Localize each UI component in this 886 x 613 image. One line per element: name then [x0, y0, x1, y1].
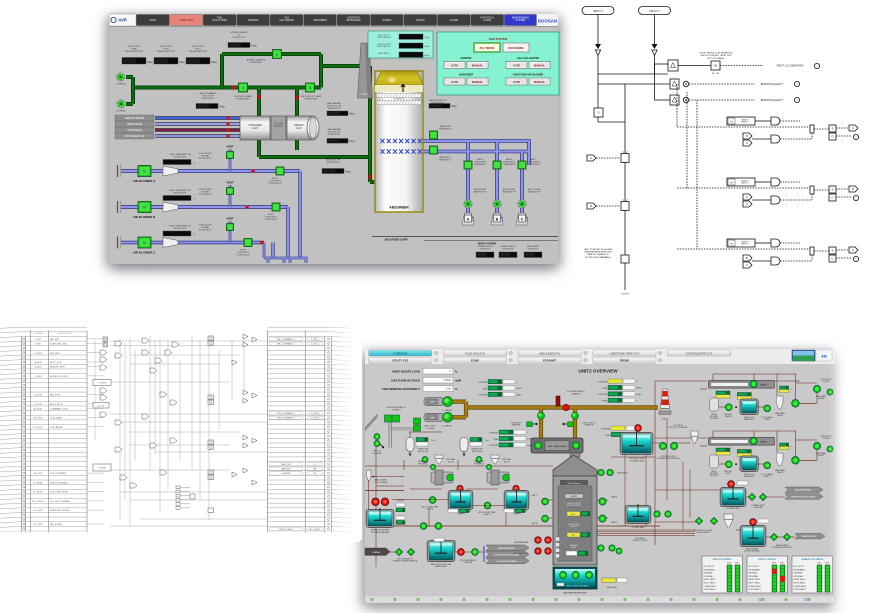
svg-text:ABSORBER: ABSORBER: [459, 74, 474, 77]
svg-text:mg/Nm: mg/Nm: [516, 395, 522, 397]
svg-text:C_PCM_1: C_PCM_1: [310, 413, 320, 415]
svg-text:STORAGE TANK A/B: STORAGE TANK A/B: [371, 531, 390, 534]
svg-text:LIMITS TO BE SET ON A LOOP: LIMITS TO BE SET ON A LOOP: [700, 54, 732, 57]
svg-text:BAD DATA QUALITY: BAD DATA QUALITY: [761, 99, 784, 102]
svg-text:RESET FAULT: RESET FAULT: [749, 578, 762, 581]
svg-text:*XXXXX/XX*: *XXXXX/XX*: [502, 248, 514, 250]
svg-text:VENT: VENT: [227, 145, 234, 149]
svg-text:PUMP B: PUMP B: [725, 473, 732, 475]
svg-text:BOOT STOP: BOOT STOP: [704, 566, 715, 568]
svg-text:ABSORBER AREA PUMP: ABSORBER AREA PUMP: [563, 592, 587, 595]
svg-text:*XXXXX/XX*: *XXXXX/XX*: [527, 248, 539, 250]
svg-text:FEEDER B: FEEDER B: [474, 463, 484, 465]
svg-text:OXIDATION AIR BLOWER: OXIDATION AIR BLOWER: [513, 74, 544, 77]
svg-text:SERVICE AIR: SERVICE AIR: [127, 123, 142, 126]
svg-text:Wet Limestone: Wet Limestone: [567, 482, 581, 485]
svg-text:DAMPER: DAMPER: [461, 57, 472, 60]
svg-text:*OPEN/SHUT*: *OPEN/SHUT*: [304, 99, 319, 101]
svg-text:BLOWDOWN TANK: BLOWDOWN TANK: [744, 550, 760, 553]
svg-text:PUMP A: PUMP A: [427, 508, 435, 511]
svg-text:RESET FAULT: RESET FAULT: [704, 578, 717, 581]
svg-text:P-WTR/A2: P-WTR/A2: [489, 431, 498, 434]
svg-text:M: M: [143, 241, 146, 245]
svg-text:REMOTE_RUN: REMOTE_RUN: [50, 367, 65, 369]
svg-text:*XXXXX/XXTP/XX*: *XXXXX/XXTP/XX*: [189, 51, 208, 53]
svg-text:PBL_RUN: PBL_RUN: [50, 353, 60, 355]
svg-text:CTAH: CTAH: [602, 387, 608, 390]
svg-text:TANK A: TANK A: [397, 499, 404, 502]
svg-text:Pavg: Pavg: [349, 112, 355, 115]
svg-text:OVER VIEW: OVER VIEW: [179, 19, 194, 22]
svg-text:AUTO: AUTO: [513, 64, 520, 68]
svg-text:IN/OUT FAULT: IN/OUT FAULT: [749, 582, 762, 585]
svg-text:S: S: [831, 188, 833, 192]
svg-text:THAN MAXIMUM EXPECTED: THAN MAXIMUM EXPECTED: [584, 251, 613, 254]
svg-text:T_RST: T_RST: [35, 339, 42, 341]
svg-text:PL_STOP: PL_STOP: [33, 427, 43, 429]
svg-text:C_PCM_2: C_PCM_2: [310, 418, 320, 420]
svg-text:UNIT2 OVERVIEW: UNIT2 OVERVIEW: [578, 369, 618, 374]
svg-text:*START/STOP*: *START/STOP*: [473, 190, 487, 193]
svg-text:C: C: [746, 202, 748, 206]
svg-text:PAL_COMMAND_2: PAL_COMMAND_2: [277, 343, 295, 346]
svg-text:ABSORBER AREA: ABSORBER AREA: [498, 547, 515, 550]
svg-text:SPRAY PUMPS: SPRAY PUMPS: [478, 241, 497, 245]
svg-text:XFER_PDOWNED: XFER_PDOWNED: [50, 482, 68, 484]
svg-text:XXX_PDOWNED: XXX_PDOWNED: [50, 473, 67, 475]
svg-text:CPXH: CPXH: [602, 401, 608, 403]
svg-text:S: S: [831, 127, 833, 131]
svg-text:*XXTXXX/XXT*: *XXTXXX/XXT*: [173, 192, 187, 194]
svg-text:PUMP B: PUMP B: [484, 514, 492, 516]
svg-text:PRD_COMMAND_1: PRD_COMMAND_1: [277, 412, 296, 415]
svg-text:Pavg: Pavg: [451, 105, 457, 108]
svg-text:ABS STAGE PUMP A/B/C: ABS STAGE PUMP A/B/C: [567, 585, 590, 588]
svg-text:INPUT 3: INPUT 3: [741, 244, 748, 246]
svg-text:PL_XFER: PL_XFER: [33, 482, 43, 484]
svg-text:STORAGE TANK: STORAGE TANK: [630, 459, 645, 462]
svg-text:M: M: [143, 205, 146, 209]
svg-text:S: S: [831, 249, 833, 253]
svg-text:*XXXXX/TPC*: *XXXXX/TPC*: [232, 37, 246, 39]
svg-text:GAS PASSED: GAS PASSED: [327, 102, 341, 105]
svg-text:GAS HEATER: GAS HEATER: [279, 19, 294, 22]
svg-text:PUMP A: PUMP A: [764, 418, 771, 421]
svg-text:GAS GAS HEATER: GAS GAS HEATER: [517, 57, 540, 60]
svg-text:Pavg: Pavg: [251, 44, 257, 47]
svg-text:PAL_ASSIST: PAL_ASSIST: [50, 523, 63, 526]
svg-text:INTERNAL: INTERNAL: [794, 572, 803, 575]
svg-text:BY LOOP BASIS: BY LOOP BASIS: [708, 57, 725, 60]
svg-text:STACK: STACK: [662, 418, 669, 421]
svg-text:Pavg: Pavg: [219, 105, 225, 108]
svg-text:RATE OF CHANGE OF: RATE OF CHANGE OF: [587, 253, 610, 256]
svg-text:PRD_COMMAND_2: PRD_COMMAND_2: [277, 417, 296, 420]
svg-text:*XXTXXX/XXT*: *XXTXXX/XXT*: [173, 156, 187, 158]
svg-text:UNIT2: UNIT2: [571, 496, 576, 498]
svg-text:mg/Nm: mg/Nm: [527, 445, 533, 447]
svg-text:WASH TANK: WASH TANK: [744, 475, 755, 478]
svg-text:GAF: GAF: [430, 401, 435, 404]
svg-text:AUTO: AUTO: [451, 64, 458, 68]
svg-text:AIR BLOWER C: AIR BLOWER C: [133, 251, 156, 255]
svg-text:*XXXXX/XXTP/XX*: *XXXXX/XXTP/XX*: [125, 51, 144, 53]
svg-text:FEED PUMP A/B: FEED PUMP A/B: [697, 531, 711, 534]
svg-text:*XXXXX/TPC*: *XXXXX/TPC*: [326, 162, 340, 164]
svg-text:IN/OUT FAULT: IN/OUT FAULT: [704, 582, 717, 585]
svg-text:*START/STOP*: *START/STOP*: [502, 190, 516, 193]
svg-text:PAL_RST: PAL_RST: [50, 338, 60, 341]
svg-text:C-GTAH IN: C-GTAH IN: [442, 425, 453, 428]
svg-text:A: A: [746, 195, 748, 199]
svg-text:UNIT2 BOILER LOAD: UNIT2 BOILER LOAD: [392, 369, 420, 373]
svg-text:C: C: [852, 248, 854, 252]
svg-text:GGH: GGH: [296, 127, 302, 130]
svg-text:DESCRIPTION: DESCRIPTION: [58, 333, 73, 335]
svg-text:FGD REMOVAL EFFICIENCY: FGD REMOVAL EFFICIENCY: [382, 387, 420, 391]
svg-text:BROADBAND: BROADBAND: [704, 568, 716, 571]
svg-text:TANK B: TANK B: [397, 523, 404, 526]
svg-text:BAD DATA QUALITY: BAD DATA QUALITY: [761, 83, 784, 86]
svg-text:FORCE FAULT: FORCE FAULT: [794, 588, 807, 591]
svg-text:UTILITY SYS: UTILITY SYS: [392, 359, 408, 363]
svg-text:mmWG: mmWG: [636, 388, 642, 390]
svg-text:INPUT 1: INPUT 1: [741, 122, 748, 124]
svg-text:BYPASS DAMPS: BYPASS DAMPS: [231, 31, 249, 34]
svg-text:DAMPER: DAMPER: [248, 19, 259, 22]
svg-text:GGH STEAM: GGH STEAM: [127, 129, 141, 132]
svg-text:GLONED TANK: GLONED TANK: [632, 526, 646, 529]
svg-text:R_RUN: R_RUN: [34, 353, 42, 355]
svg-text:INTERLOCK_RUN: INTERLOCK_RUN: [50, 376, 68, 378]
svg-text:2: 2: [276, 52, 278, 56]
svg-text:* Dmi: * Dmi: [431, 440, 436, 442]
svg-text:A: A: [852, 126, 854, 130]
svg-text:m3/g: m3/g: [425, 37, 429, 39]
svg-text:M: M: [143, 169, 146, 173]
svg-text:EXTERNAL: EXTERNAL: [794, 575, 804, 578]
svg-text:LAST TO BE SET PE HIGHER: LAST TO BE SET PE HIGHER: [584, 248, 613, 251]
svg-text:PLC MODE: PLC MODE: [480, 46, 495, 50]
svg-text:AUTO_RUN: AUTO_RUN: [50, 361, 62, 364]
svg-text:*XXXXX/TPC*: *XXXXX/TPC*: [327, 108, 341, 110]
svg-text:AUTO_STOP: AUTO_STOP: [50, 403, 63, 406]
svg-text:OXIDATION: OXIDATION: [347, 17, 360, 20]
svg-text:PUMPS: PUMPS: [382, 19, 391, 22]
svg-text:ABSORBER AREA: ABSORBER AREA: [795, 489, 812, 492]
svg-text:DAY SILO A: DAY SILO A: [418, 450, 429, 453]
svg-text:AIR BLOWER B: AIR BLOWER B: [133, 215, 156, 219]
svg-text:GYPSUM DWTR SYS: GYPSUM DWTR SYS: [686, 351, 713, 355]
svg-text:I.D FAN A: I.D FAN A: [116, 83, 126, 86]
svg-text:C_PAL_1: C_PAL_1: [311, 338, 320, 341]
svg-text:MANUAL: MANUAL: [534, 64, 546, 68]
svg-text:~ Fig: FGD Plant Graphic Displ: ~ Fig: FGD Plant Graphic Display: [112, 267, 151, 271]
svg-text:PUMP A: PUMP A: [725, 415, 732, 418]
svg-text:FGD INLET DAMP: FGD INLET DAMP: [234, 95, 253, 98]
svg-text:COM_ASSIST: COM_ASSIST: [50, 426, 64, 429]
svg-text:RECEIVER: RECEIVER: [710, 418, 719, 420]
svg-text:S_STOP: S_STOP: [34, 404, 43, 406]
svg-text:EXTERNAL: EXTERNAL: [704, 575, 714, 578]
svg-text:C-GTAH IN: C-GTAH IN: [442, 409, 453, 412]
svg-text:BLOWDOWN PUMP A/B: BLOWDOWN PUMP A/B: [773, 546, 793, 549]
svg-text:MANUAL: MANUAL: [534, 80, 546, 84]
svg-text:STACK: STACK: [362, 93, 369, 96]
svg-text:4: 4: [309, 86, 311, 90]
svg-text:PERFORM_PDOWN: PERFORM_PDOWN: [50, 510, 70, 512]
svg-text:PLL2_PROT: PLL2_PROT: [32, 501, 45, 503]
svg-text:C: C: [746, 263, 748, 267]
svg-text:OAF B: OAF B: [611, 521, 618, 524]
svg-text:*XXTXXXXXX*: *XXTXXXXXX*: [198, 158, 212, 160]
svg-text:FGD OUTLET DAMP: FGD OUTLET DAMP: [301, 95, 322, 98]
svg-text:COMMON CPU STATUS: COMMON CPU STATUS: [801, 558, 824, 561]
svg-text:OUTPUT: OUTPUT: [621, 294, 630, 296]
svg-text:*OPEN/SHUT*: *OPEN/SHUT*: [236, 99, 251, 101]
svg-text:P-WTR/A1: P-WTR/A1: [598, 393, 607, 396]
svg-text:FILTRATE TANK: FILTRATE TANK: [726, 507, 740, 510]
svg-text:ALARM: ALARM: [450, 19, 459, 22]
svg-text:*START/STOP*: *START/STOP*: [527, 190, 541, 193]
svg-text:P-WTR/A2: P-WTR/A2: [601, 427, 610, 430]
svg-text:AUTO: AUTO: [451, 80, 458, 84]
svg-text:C_RUN: C_RUN: [34, 376, 42, 378]
svg-text:B: B: [852, 187, 854, 191]
svg-text:WASHING WATER PUMP A/B: WASHING WATER PUMP A/B: [393, 560, 418, 563]
svg-text:C_PAL_2: C_PAL_2: [311, 343, 320, 346]
svg-text:*XXXXX/TPC*: *XXXXX/TPC*: [327, 134, 341, 136]
svg-text:LE SHAFT: LE SHAFT: [391, 408, 401, 411]
svg-text:FEEDER A: FEEDER A: [418, 462, 428, 465]
svg-text:POWER FAULT: POWER FAULT: [704, 585, 718, 588]
svg-text:INPUT 2: INPUT 2: [650, 9, 660, 13]
svg-text:MANUAL: MANUAL: [472, 64, 484, 68]
svg-text:PUMP B: PUMP B: [764, 476, 771, 478]
svg-text:*OPEN/SHUT*: *OPEN/SHUT*: [473, 164, 486, 166]
svg-text:INTERNAL: INTERNAL: [749, 572, 758, 575]
svg-text:TREND: TREND: [620, 359, 629, 363]
svg-text:m3M: m3M: [455, 378, 461, 382]
svg-text:AB: AB: [821, 354, 827, 359]
svg-text:START_PAL_SEQ: START_PAL_SEQ: [50, 343, 67, 346]
svg-text:Pavg: Pavg: [211, 61, 217, 64]
svg-text:DENSITY: DENSITY: [570, 526, 578, 528]
svg-text:DOOSAN: DOOSAN: [538, 19, 557, 24]
svg-text:*OPEN/SHUT*: *OPEN/SHUT*: [438, 159, 451, 161]
svg-text:ABS pH A/B: ABS pH A/B: [607, 586, 617, 589]
svg-text:OIL/GAS: OIL/GAS: [274, 122, 283, 125]
svg-text:CTAH: CTAH: [605, 434, 611, 437]
svg-text:PS_RUN: PS_RUN: [34, 473, 43, 475]
svg-text:%: %: [194, 199, 196, 201]
svg-text:0.00: 0.00: [446, 387, 452, 391]
svg-text:GAS A INLET: GAS A INLET: [617, 472, 629, 475]
svg-text:DOWNED: DOWNED: [281, 473, 291, 475]
svg-text:FGD WWT: FGD WWT: [543, 359, 556, 363]
svg-text:OAF B: OAF B: [531, 522, 537, 525]
svg-text:Pavg: Pavg: [349, 140, 355, 143]
svg-text:mg/Nm: mg/Nm: [636, 394, 642, 396]
svg-text:A: A: [590, 156, 592, 160]
svg-text:VBF B: VBF B: [760, 442, 767, 444]
svg-text:INPUT 1 & 2 DEVIATION: INPUT 1 & 2 DEVIATION: [777, 65, 804, 68]
svg-text:BOOT STOP: BOOT STOP: [794, 566, 805, 568]
svg-text:FLUE GAS VOL: FLUE GAS VOL: [377, 45, 392, 48]
svg-text:DAY SILO B: DAY SILO B: [472, 450, 483, 453]
svg-text:ALARM: ALARM: [483, 19, 491, 22]
svg-text:COMMAND_STOP: COMMAND_STOP: [50, 407, 68, 410]
svg-text:PL_CMD: PL_CMD: [34, 524, 43, 526]
svg-text:FGD SYSTEM: FGD SYSTEM: [489, 37, 508, 41]
svg-text:OVERVIEW: OVERVIEW: [393, 351, 408, 355]
svg-text:HYDROCYCLONE A/B: HYDROCYCLONE A/B: [669, 426, 688, 429]
svg-text:Pavg: Pavg: [345, 170, 351, 173]
svg-text:P-WTR/A2: P-WTR/A2: [598, 380, 607, 383]
svg-text:PR A: PR A: [132, 48, 138, 51]
svg-text:MILL A: MILL A: [448, 460, 455, 463]
svg-text:VENT: VENT: [227, 217, 234, 221]
svg-text:Pavg: Pavg: [179, 61, 185, 64]
svg-text:*OPEN/SHUT*: *OPEN/SHUT*: [249, 62, 264, 64]
svg-text:27533: 27533: [444, 378, 452, 382]
svg-text:PV (PROCESS VARIABLE): PV (PROCESS VARIABLE): [585, 256, 611, 259]
svg-text:GGH: GGH: [252, 127, 258, 130]
svg-text:ABS WATER C/D: ABS WATER C/D: [514, 552, 529, 555]
svg-text:WASH TANK: WASH TANK: [744, 418, 755, 421]
svg-text:LIMESTONE SLURRY AREA: LIMESTONE SLURRY AREA: [791, 496, 816, 499]
svg-text:AUTO: AUTO: [513, 80, 520, 84]
svg-text:BOOT STOP: BOOT STOP: [749, 566, 760, 568]
svg-text:*XXTXXXXXX*: *XXTXXXXXX*: [268, 183, 282, 185]
svg-text:mmWG: mmWG: [516, 388, 522, 390]
svg-text:VBF A: VBF A: [760, 384, 767, 387]
svg-text:B: B: [590, 204, 592, 208]
svg-text:HL: HL: [714, 64, 718, 68]
svg-text:DAMPER: DAMPER: [512, 424, 521, 427]
svg-text:EFFICIENCY: EFFICIENCY: [378, 53, 391, 55]
svg-text:EXTERNAL: EXTERNAL: [749, 575, 759, 578]
svg-text:INPUT 2: INPUT 2: [741, 183, 748, 185]
svg-text:*OPEN/SHUT*: *OPEN/SHUT*: [438, 128, 451, 130]
svg-text:OAF A: OAF A: [611, 496, 618, 499]
svg-text:*XXTXXX/XXT*: *XXTXXX/XXT*: [173, 228, 187, 230]
svg-text:GAS PASSED: GAS PASSED: [327, 128, 341, 131]
svg-text:*XXXXX/TPC*: *XXXXX/TPC*: [201, 98, 215, 100]
svg-text:WASTE WATER: WASTE WATER: [802, 535, 816, 538]
svg-text:POWER FAULT: POWER FAULT: [749, 585, 763, 588]
svg-text:PAL_COMMAND_1: PAL_COMMAND_1: [277, 338, 295, 341]
svg-text:SYSTEM: SYSTEM: [34, 333, 43, 335]
svg-text:* Dmi: * Dmi: [485, 440, 490, 442]
svg-text:m3/g: m3/g: [425, 46, 429, 48]
svg-text:UNIT2 I/O STATUS: UNIT2 I/O STATUS: [758, 558, 776, 561]
svg-text:DAMPER: DAMPER: [572, 392, 581, 395]
svg-text:BYPASS DAMPER: BYPASS DAMPER: [247, 59, 266, 62]
svg-text:m3/g: m3/g: [425, 55, 429, 57]
svg-text:AVR: AVR: [118, 18, 127, 23]
svg-text:GAS UPGRADED: GAS UPGRADED: [324, 156, 342, 159]
svg-text:mmWG: mmWG: [527, 439, 533, 441]
svg-text:ABSORBER: ABSORBER: [313, 19, 327, 22]
svg-text:PUMP A/B: PUMP A/B: [754, 506, 763, 509]
svg-text:*XXXXX/XXTP/XX*: *XXXXX/XXTP/XX*: [157, 51, 176, 53]
svg-text:ECWS: ECWS: [471, 359, 479, 363]
svg-text:*OPEN/SHUT*: *OPEN/SHUT*: [502, 164, 515, 166]
svg-text:S_RUN: S_RUN: [34, 367, 42, 369]
svg-text:PAL_STOP: PAL_STOP: [50, 393, 61, 396]
svg-text:PUMP A: PUMP A: [818, 397, 825, 400]
svg-text:*XXTXXXXXX*: *XXTXXXXXX*: [264, 219, 278, 221]
svg-text:POWER FAULT: POWER FAULT: [794, 585, 808, 588]
svg-text:SPRAYERS: SPRAYERS: [394, 98, 405, 101]
svg-text:WATER TANK: WATER TANK: [435, 565, 447, 568]
svg-text:CYCLONE A/B: CYCLONE A/B: [375, 481, 388, 484]
svg-text:P-WTR/A2: P-WTR/A2: [478, 381, 487, 384]
svg-text:P-WTR/A1: P-WTR/A1: [489, 444, 498, 447]
svg-text:CTAH: CTAH: [482, 387, 488, 390]
svg-text:HL : XX: HL : XX: [712, 73, 720, 75]
svg-text:XXXX_PDF_RDWT: XXXX_PDF_RDWT: [50, 492, 69, 494]
svg-text:CTAH: CTAH: [493, 438, 499, 441]
svg-text:S_PB2: S_PB2: [35, 344, 42, 346]
svg-text:PUMP A/B: PUMP A/B: [464, 561, 473, 564]
svg-text:PL_XSTR: PL_XSTR: [33, 510, 43, 512]
svg-text:UNIT2 CPU STATUS: UNIT2 CPU STATUS: [713, 558, 732, 561]
svg-text:GYPSUM DWTR AREA: GYPSUM DWTR AREA: [497, 560, 518, 563]
svg-text:GAS FLOW IN STACK: GAS FLOW IN STACK: [391, 378, 420, 382]
svg-text:GAS UPGRADED: GAS UPGRADED: [199, 92, 217, 95]
svg-text:AIR BIG DIFF PR: AIR BIG DIFF PR: [429, 99, 447, 102]
svg-text:FLUE GAS SYS: FLUE GAS SYS: [465, 351, 485, 355]
svg-text:NOTE: HIGH & LOW DEVIATION: NOTE: HIGH & LOW DEVIATION: [700, 52, 733, 55]
svg-text:C: C: [746, 141, 748, 145]
svg-text:GAS: GAS: [284, 17, 289, 20]
svg-text:A_RUN: A_RUN: [34, 361, 42, 364]
svg-text:GAS SYSTEM: GAS SYSTEM: [212, 19, 227, 22]
svg-text:LIMESTONE PREP SYS: LIMESTONE PREP SYS: [609, 351, 639, 355]
svg-text:HISTORICAL: HISTORICAL: [480, 17, 494, 20]
svg-text:BROADBAND: BROADBAND: [794, 568, 806, 571]
svg-text:B: B: [746, 134, 748, 138]
svg-text:LEVEL: LEVEL: [571, 547, 576, 549]
svg-text:*XXTXXXXXX*: *XXTXXXXXX*: [236, 254, 250, 256]
svg-text:MAIN: MAIN: [150, 19, 156, 22]
svg-text:PL_RDWT: PL_RDWT: [33, 492, 44, 494]
svg-text:DCS MODE: DCS MODE: [508, 46, 523, 50]
svg-text:%: %: [194, 163, 196, 165]
svg-text:TREND: TREND: [416, 19, 425, 22]
svg-text:RESET FAULT: RESET FAULT: [794, 578, 807, 581]
svg-text:*OPEN/SHUT*: *OPEN/SHUT*: [527, 164, 540, 166]
svg-text:BROADBAND: BROADBAND: [749, 568, 761, 571]
svg-text:I.D FAN B: I.D FAN B: [116, 110, 126, 113]
svg-text:FORCE FAULT: FORCE FAULT: [749, 588, 762, 591]
svg-text:ABS & EMS SYS: ABS & EMS SYS: [539, 351, 560, 355]
svg-text:P-WTR/A1: P-WTR/A1: [478, 394, 487, 397]
svg-text:ABS SO2/PPM A2: ABS SO2/PPM A2: [567, 504, 581, 507]
svg-text:INTERNAL: INTERNAL: [704, 572, 713, 575]
svg-text:BURNER: BURNER: [274, 126, 284, 128]
svg-text:S: S: [597, 111, 599, 115]
svg-text:TO FIRST: TO FIRST: [98, 468, 107, 470]
svg-text:COM_START: COM_START: [50, 417, 63, 420]
svg-text:AL-XXX: AL-XXX: [98, 404, 105, 407]
svg-text:DAMPER: DAMPER: [585, 424, 594, 427]
svg-text:VENT: VENT: [227, 181, 234, 185]
svg-text:%: %: [194, 234, 196, 236]
svg-text:IN/OUT FAULT: IN/OUT FAULT: [794, 582, 807, 585]
